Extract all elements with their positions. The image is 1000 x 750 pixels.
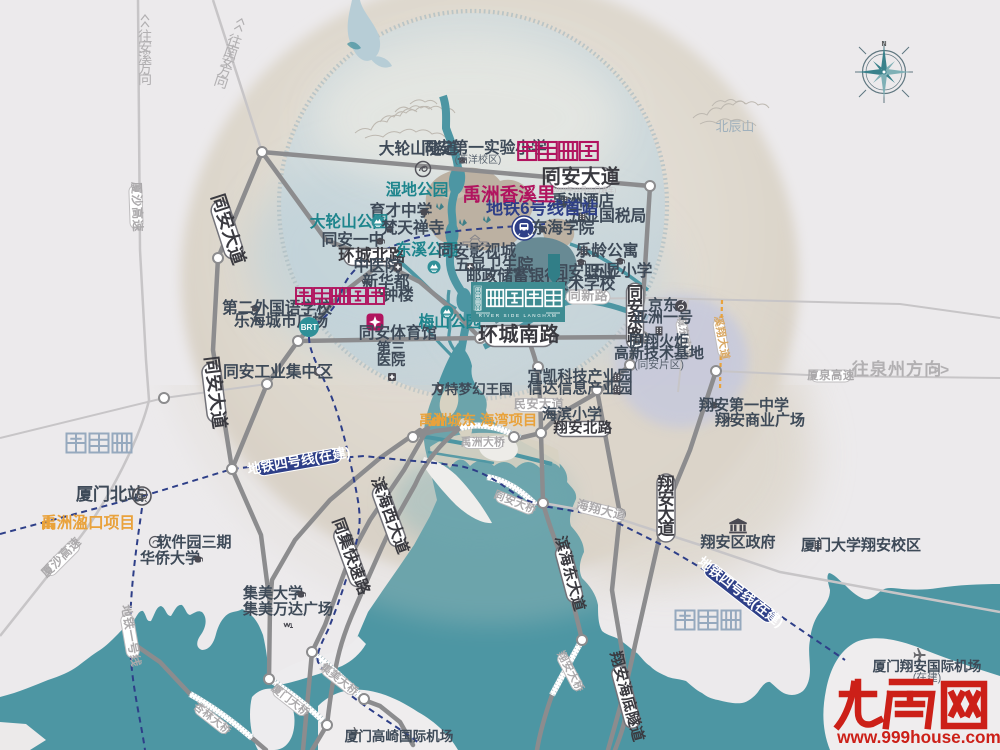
svg-text:梵天禅寺: 梵天禅寺 (382, 218, 445, 237)
svg-text:www.999house.com: www.999house.com (836, 727, 1000, 747)
svg-text:乐龄公寓: 乐龄公寓 (576, 241, 639, 260)
svg-text:往泉州方向: 往泉州方向 (852, 359, 942, 379)
svg-text:集美万达广场: 集美万达广场 (242, 600, 333, 618)
svg-text:(同安片区): (同安片区) (634, 358, 684, 371)
svg-text:禹洲大桥: 禹洲大桥 (461, 436, 506, 449)
svg-text:海滨小学: 海滨小学 (542, 405, 602, 423)
svg-text:中医院: 中医院 (353, 256, 400, 275)
svg-text:翔安商业广场: 翔安商业广场 (714, 411, 805, 429)
svg-text:医院: 医院 (377, 351, 406, 369)
svg-text:禹洲香溪里: 禹洲香溪里 (463, 184, 556, 205)
svg-text:>>: >> (931, 362, 949, 379)
svg-text:集美大学: 集美大学 (242, 584, 303, 602)
svg-text:北辰山: 北辰山 (716, 119, 755, 134)
svg-text:禹洲溋口项目: 禹洲溋口项目 (41, 513, 135, 532)
svg-text:同安一中: 同安一中 (322, 230, 385, 249)
svg-text:道: 道 (657, 519, 674, 539)
svg-text:(西洋校区): (西洋校区) (455, 153, 502, 166)
svg-text:华侨大学: 华侨大学 (140, 549, 200, 567)
svg-text:厦沙高速: 厦沙高速 (129, 182, 146, 233)
svg-text:翔安区政府: 翔安区政府 (699, 533, 775, 551)
svg-text:RIVER SIDE LANGHAM: RIVER SIDE LANGHAM (479, 313, 558, 318)
svg-text:厦门高崎国际机场: 厦门高崎国际机场 (345, 728, 454, 744)
svg-text:软件园三期: 软件园三期 (156, 533, 231, 551)
svg-text:钟楼: 钟楼 (382, 285, 414, 304)
svg-text:禹洲城东 海湾项目: 禹洲城东 海湾项目 (419, 411, 537, 429)
svg-text:方特梦幻王国: 方特梦幻王国 (431, 381, 513, 397)
svg-text:向: 向 (138, 71, 152, 88)
svg-text:环城南路: 环城南路 (478, 322, 560, 346)
svg-text:厦门大学翔安校区: 厦门大学翔安校区 (801, 536, 921, 554)
svg-text:亚洲一号: 亚洲一号 (633, 309, 693, 326)
svg-text:湿地公园: 湿地公园 (385, 180, 449, 199)
svg-text:厦泉高速: 厦泉高速 (807, 368, 855, 382)
svg-text:五显小学: 五显小学 (590, 261, 653, 280)
svg-text:东海学院: 东海学院 (532, 218, 595, 237)
svg-text:BRT: BRT (301, 323, 318, 332)
svg-text:N: N (881, 41, 886, 48)
